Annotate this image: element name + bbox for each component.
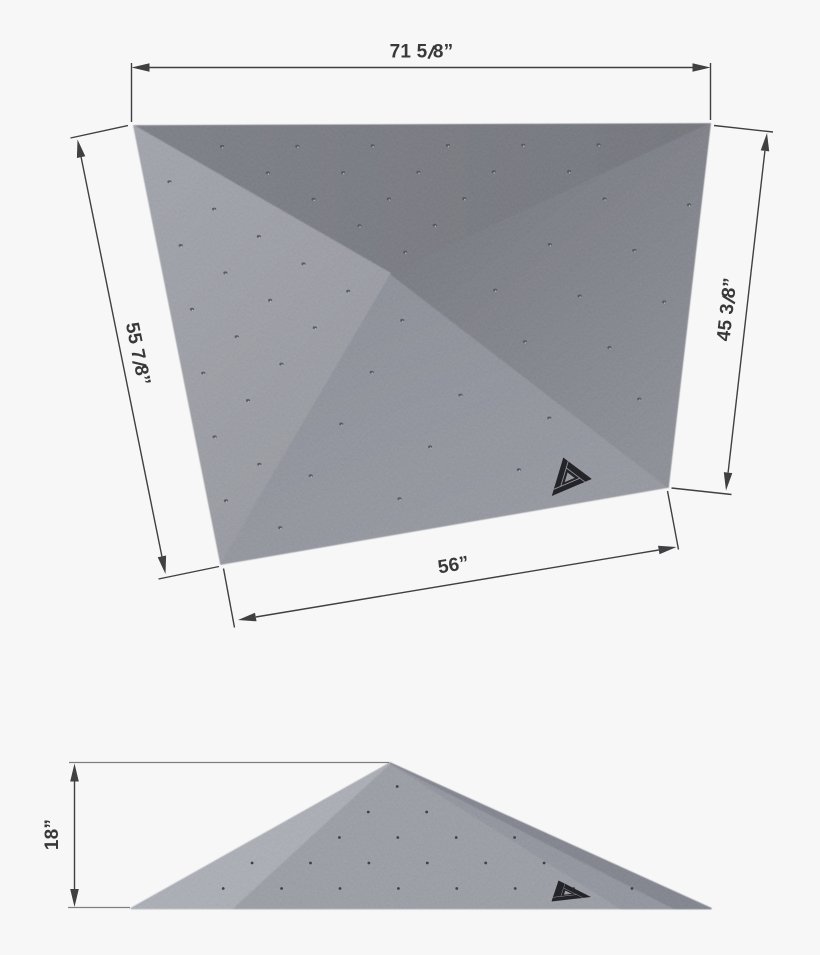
svg-text:71 5/8”: 71 5/8” bbox=[390, 42, 454, 64]
svg-text:18”: 18” bbox=[42, 819, 63, 850]
